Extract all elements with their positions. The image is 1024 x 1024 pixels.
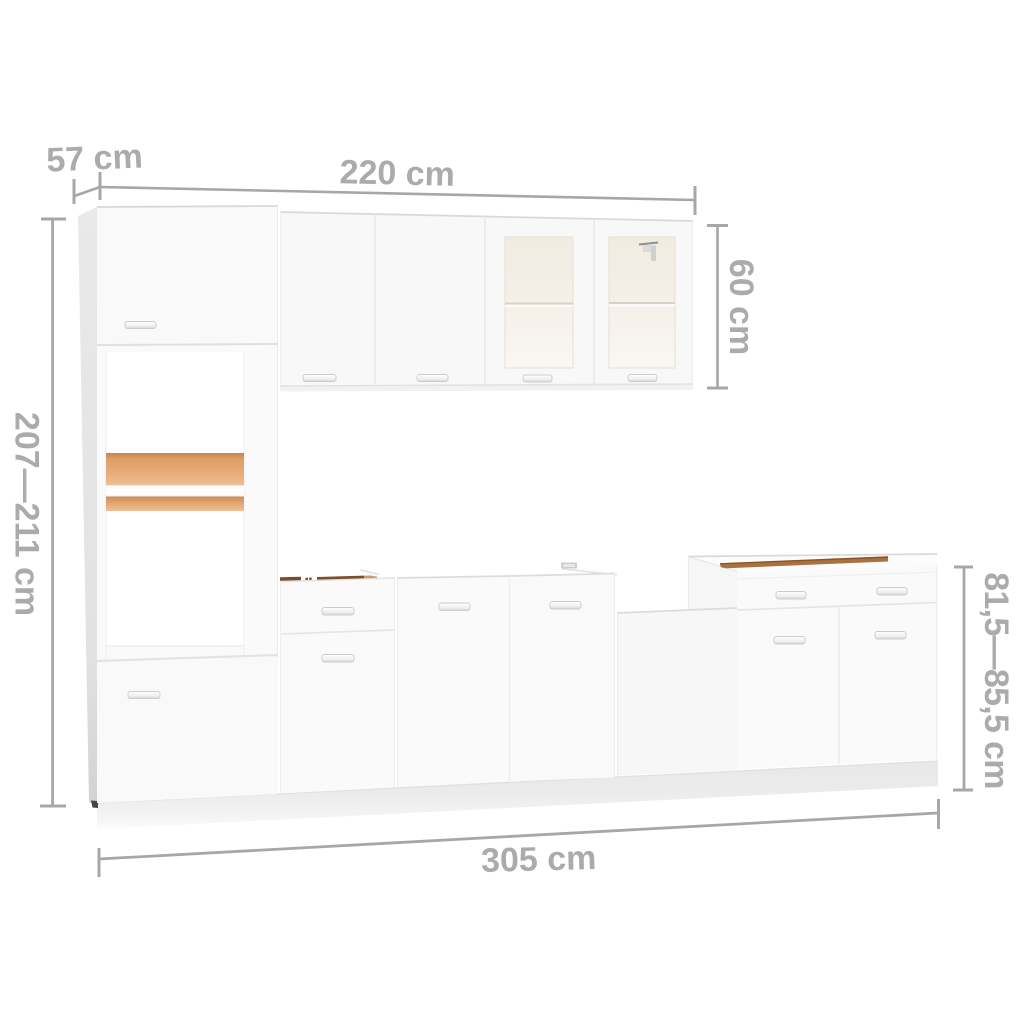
svg-text:305 cm: 305 cm bbox=[481, 839, 597, 880]
svg-text:60 cm: 60 cm bbox=[722, 259, 760, 355]
svg-text:57 cm: 57 cm bbox=[46, 137, 144, 179]
svg-text:81,5—85,5 cm: 81,5—85,5 cm bbox=[977, 572, 1015, 789]
svg-text:207—211 cm: 207—211 cm bbox=[8, 412, 46, 616]
svg-text:220 cm: 220 cm bbox=[339, 153, 455, 194]
